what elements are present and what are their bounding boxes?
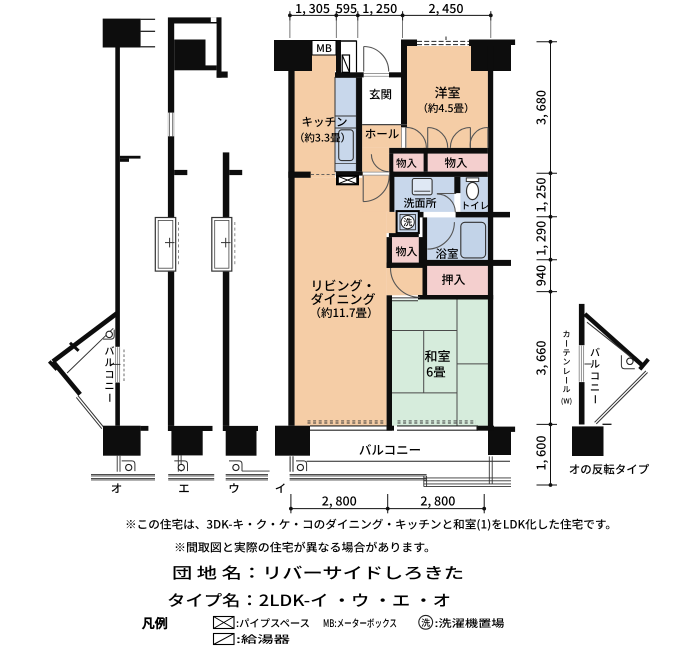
svg-text:バルコニー: バルコニー [359,440,421,459]
svg-text:ル: ル [563,384,571,395]
svg-text:洗: 洗 [421,616,430,629]
svg-text:トイレ: トイレ [461,198,490,212]
svg-text:ー: ー [561,339,572,347]
svg-text:※この住宅は、3DK-キ・ク・ケ・コのダイニング・キッチンと: ※この住宅は、3DK-キ・ク・ケ・コのダイニング・キッチンと和室(1)をLDK化… [125,517,617,533]
svg-text:1, 305: 1, 305 [295,0,330,17]
svg-text:3, 660: 3, 660 [531,340,550,375]
svg-text:ー: ー [589,394,604,404]
svg-text:カ: カ [563,329,571,340]
svg-text:物入: 物入 [396,156,417,171]
svg-text:1, 600: 1, 600 [531,435,550,470]
svg-text:洋室: 洋室 [434,83,460,102]
svg-text:浴室: 浴室 [436,246,459,262]
svg-text:MB:メーターボックス: MB:メーターボックス [323,616,397,631]
svg-text:玄関: 玄関 [369,87,392,103]
svg-text:1, 250: 1, 250 [362,0,397,17]
svg-text:ニ: ニ [105,378,115,393]
svg-text:洗: 洗 [403,216,412,229]
svg-text:1, 290: 1, 290 [531,221,550,256]
svg-text:エ: エ [178,481,190,497]
svg-text:凡例: 凡例 [141,613,168,632]
svg-text:（約4.5畳）: （約4.5畳） [417,101,474,116]
svg-text:（約3.3畳）: （約3.3畳） [294,131,351,146]
svg-text:2, 800: 2, 800 [420,490,455,509]
svg-text:レ: レ [563,366,571,377]
svg-text:2, 800: 2, 800 [322,490,357,509]
svg-text:940: 940 [531,265,550,286]
svg-text:2, 450: 2, 450 [428,0,463,17]
svg-text:団 地 名：リバーサイドしろきた: 団 地 名：リバーサイドしろきた [172,562,464,584]
svg-text:ニ: ニ [590,379,600,394]
svg-text:ホール: ホール [365,126,400,142]
svg-text:(W): (W) [561,397,572,407]
svg-text:オ: オ [111,481,123,497]
svg-text:3, 680: 3, 680 [531,90,550,125]
svg-text:（約11.7畳）: （約11.7畳） [309,305,378,321]
svg-text:押入: 押入 [441,271,465,288]
svg-text:洗面所: 洗面所 [404,195,437,211]
svg-text:ウ: ウ [228,481,240,497]
svg-text:595: 595 [336,0,357,17]
svg-text::洗濯機置場: :洗濯機置場 [435,616,506,631]
svg-text:イ: イ [275,481,287,497]
svg-text:※間取図と実際の住宅が異なる場合があります。: ※間取図と実際の住宅が異なる場合があります。 [174,540,436,556]
svg-text:MB: MB [316,41,332,56]
svg-text::給湯器: :給湯器 [236,632,291,647]
svg-text:オの反転タイプ: オの反転タイプ [569,462,650,478]
svg-text:物入: 物入 [396,244,418,260]
svg-text:6畳: 6畳 [426,362,446,381]
svg-text::パイプスペース: :パイプスペース [236,616,310,631]
svg-text:1, 250: 1, 250 [531,177,550,212]
svg-text:キッチン: キッチン [302,114,348,130]
svg-text:ー: ー [561,376,572,384]
svg-text:ー: ー [103,393,118,403]
svg-text:物入: 物入 [445,155,468,171]
svg-text:タイプ名：2LDK-イ ・ウ ・エ ・オ: タイプ名：2LDK-イ ・ウ ・エ ・オ [167,589,451,611]
